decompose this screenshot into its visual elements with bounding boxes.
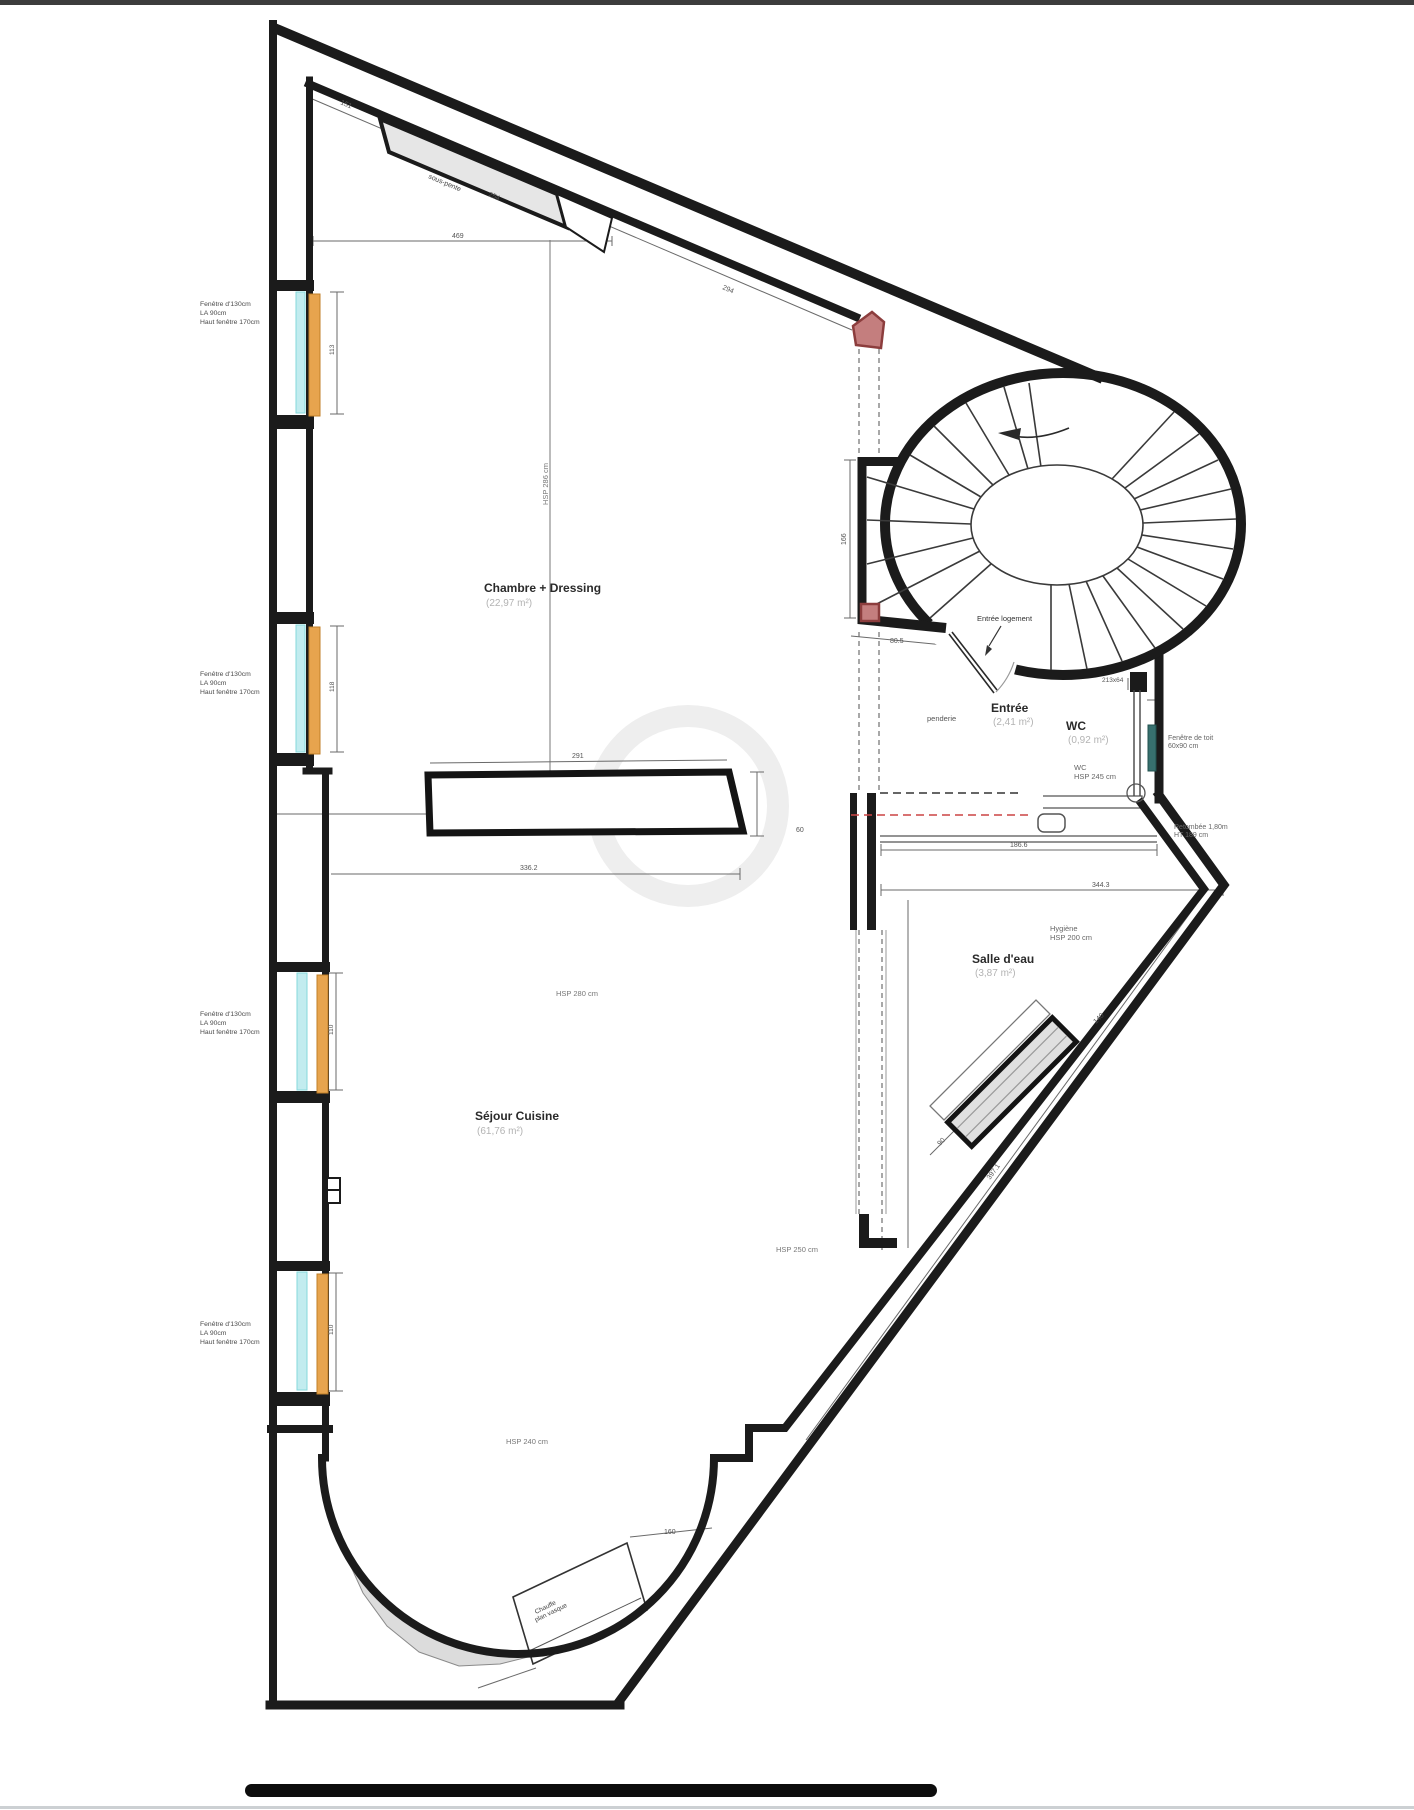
svg-text:WC: WC — [1074, 763, 1087, 772]
svg-text:Fenêtre d'130cm: Fenêtre d'130cm — [200, 1011, 251, 1018]
svg-text:Haut fenêtre 170cm: Haut fenêtre 170cm — [200, 1029, 260, 1036]
svg-text:110: 110 — [328, 1024, 335, 1035]
svg-text:Hygiène: Hygiène — [1050, 924, 1078, 933]
svg-text:Séjour Cuisine: Séjour Cuisine — [475, 1109, 559, 1123]
svg-text:HSP 250 cm: HSP 250 cm — [776, 1245, 818, 1254]
svg-text:HSP 280 cm: HSP 280 cm — [556, 989, 598, 998]
svg-text:HSP 245 cm: HSP 245 cm — [1074, 772, 1116, 781]
svg-text:118: 118 — [329, 681, 336, 692]
svg-text:113: 113 — [329, 344, 336, 355]
svg-text:60: 60 — [796, 827, 804, 834]
svg-text:(3,87 m²): (3,87 m²) — [975, 968, 1016, 979]
svg-text:336.2: 336.2 — [520, 865, 538, 872]
svg-text:186.6: 186.6 — [1010, 842, 1028, 849]
svg-text:Haut fenêtre 170cm: Haut fenêtre 170cm — [200, 689, 260, 696]
svg-text:166: 166 — [841, 533, 848, 545]
svg-text:Fenêtre d'130cm: Fenêtre d'130cm — [200, 1321, 251, 1328]
svg-text:(61,76 m²): (61,76 m²) — [477, 1126, 523, 1137]
svg-text:291: 291 — [572, 753, 584, 760]
svg-text:110: 110 — [328, 1324, 335, 1335]
svg-text:60x90 cm: 60x90 cm — [1168, 743, 1199, 750]
svg-text:HSP 240 cm: HSP 240 cm — [506, 1437, 548, 1446]
svg-text:80.5: 80.5 — [890, 638, 904, 645]
svg-text:Entrée: Entrée — [991, 701, 1029, 715]
svg-text:LA 90cm: LA 90cm — [200, 310, 227, 317]
svg-text:Chambre + Dressing: Chambre + Dressing — [484, 581, 601, 595]
svg-text:Fenêtre d'130cm: Fenêtre d'130cm — [200, 671, 251, 678]
svg-text:Entrée logement: Entrée logement — [977, 614, 1033, 623]
svg-text:Salle d'eau: Salle d'eau — [972, 952, 1034, 966]
svg-text:LA 90cm: LA 90cm — [200, 1330, 227, 1337]
svg-text:(2,41 m²): (2,41 m²) — [993, 717, 1034, 728]
svg-text:Haut fenêtre 170cm: Haut fenêtre 170cm — [200, 1339, 260, 1346]
svg-text:WC: WC — [1066, 719, 1086, 733]
svg-text:(0,92 m²): (0,92 m²) — [1068, 735, 1109, 746]
svg-text:LA 90cm: LA 90cm — [200, 1020, 227, 1027]
svg-text:HSP 286 cm: HSP 286 cm — [541, 463, 550, 505]
svg-text:LA 90cm: LA 90cm — [200, 680, 227, 687]
svg-text:Haut fenêtre 170cm: Haut fenêtre 170cm — [200, 319, 260, 326]
svg-text:HT 189 cm: HT 189 cm — [1174, 832, 1208, 839]
svg-text:469: 469 — [452, 233, 464, 240]
svg-text:Fenêtre de toit: Fenêtre de toit — [1168, 735, 1213, 742]
svg-text:HSP 200 cm: HSP 200 cm — [1050, 933, 1092, 942]
svg-text:344.3: 344.3 — [1092, 882, 1110, 889]
svg-text:160: 160 — [664, 1529, 676, 1536]
svg-text:Retombée 1,80m: Retombée 1,80m — [1174, 824, 1228, 831]
svg-text:penderie: penderie — [927, 714, 956, 723]
svg-text:213x64: 213x64 — [1102, 677, 1124, 684]
svg-text:(22,97 m²): (22,97 m²) — [486, 598, 532, 609]
svg-text:Fenêtre d'130cm: Fenêtre d'130cm — [200, 301, 251, 308]
